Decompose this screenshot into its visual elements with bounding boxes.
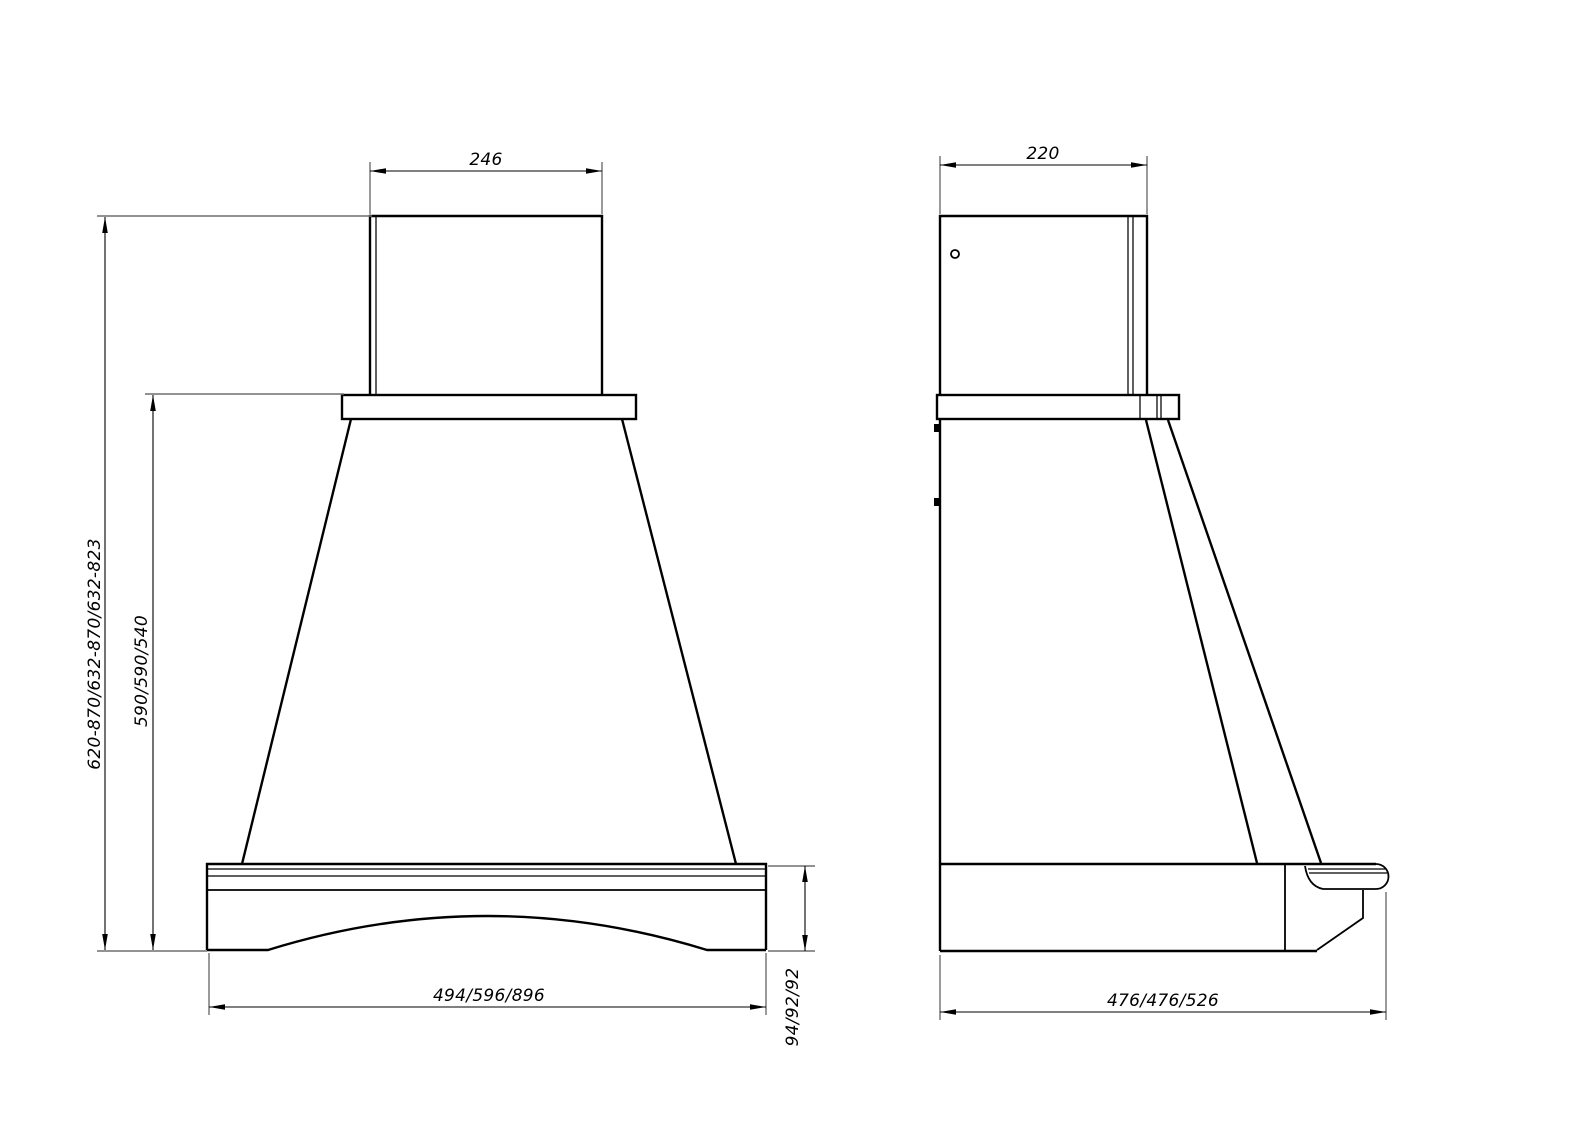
arrowhead: [940, 1009, 956, 1015]
dim-label-trim-height: 94/92/92: [783, 968, 803, 1047]
dim-label-base-depth: 476/476/526: [1107, 991, 1219, 1011]
dimension-arrowheads: [102, 162, 1386, 1015]
base-arch: [207, 916, 766, 950]
side-view: [934, 216, 1388, 951]
arrowhead: [586, 168, 602, 174]
hood-slope-outer: [1168, 420, 1321, 863]
dim-label-overall-height: 620-870/632-870/632-823: [85, 538, 105, 769]
arrowhead: [209, 1004, 225, 1010]
technical-drawing-page: 246 220 620-870/632-870/632-823 590/590/…: [0, 0, 1588, 1123]
base-band-outline: [207, 864, 766, 950]
arrowhead: [150, 395, 156, 411]
cooker-hood-drawing: [0, 0, 1588, 1123]
arrowhead: [940, 162, 956, 168]
hood-slope-right: [622, 419, 736, 864]
dim-label-chimney-depth: 220: [1026, 144, 1059, 164]
arrowhead: [802, 935, 808, 951]
bullnose-edge: [1376, 864, 1388, 889]
chimney-outline: [370, 216, 602, 395]
hood-slope-inner: [1146, 420, 1257, 863]
mounting-tab-top: [934, 424, 940, 432]
mounting-tab-bottom: [934, 498, 940, 506]
dim-label-body-height: 590/590/540: [132, 615, 152, 727]
arrowhead: [102, 934, 108, 950]
dimension-lines: [105, 165, 1386, 1012]
arrowhead: [1131, 162, 1147, 168]
dim-label-chimney-width: 246: [469, 150, 502, 170]
screw-hole: [951, 250, 959, 258]
dim-label-base-width: 494/596/896: [433, 986, 545, 1006]
chamfer-front: [1317, 890, 1363, 950]
arrowhead: [370, 168, 386, 174]
front-view: [207, 216, 766, 950]
arrowhead: [150, 934, 156, 950]
hood-slope-left: [242, 419, 351, 864]
arrowhead: [750, 1004, 766, 1010]
arrowhead: [1370, 1009, 1386, 1015]
arrowhead: [102, 217, 108, 233]
arrowhead: [802, 866, 808, 882]
chimney-outline-side: [940, 216, 1147, 395]
mounting-shelf-side: [937, 395, 1179, 419]
mounting-shelf: [342, 395, 636, 419]
